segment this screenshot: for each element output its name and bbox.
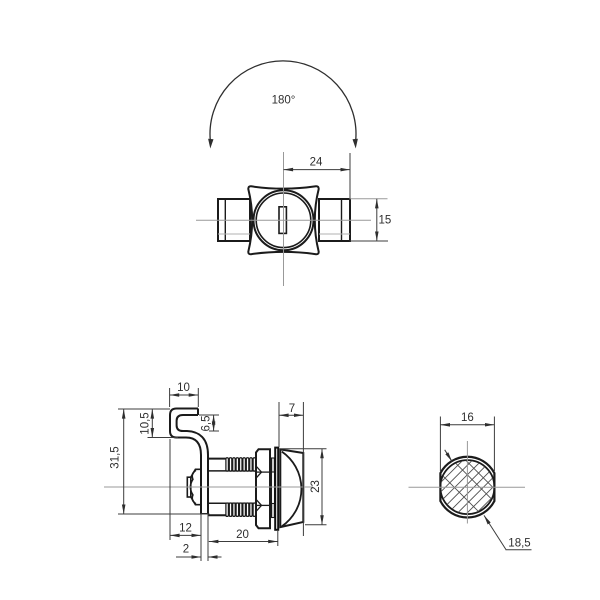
svg-text:2: 2 [183,544,189,556]
svg-text:6,5: 6,5 [201,416,213,432]
svg-text:10: 10 [177,382,190,394]
svg-text:10,5: 10,5 [140,412,152,434]
svg-text:31,5: 31,5 [109,446,121,468]
svg-text:20: 20 [236,529,249,541]
svg-text:16: 16 [461,412,474,424]
svg-text:15: 15 [379,215,392,227]
svg-text:24: 24 [310,157,323,169]
svg-text:23: 23 [310,480,322,493]
svg-text:180°: 180° [272,95,296,107]
svg-text:18,5: 18,5 [508,538,530,550]
svg-text:7: 7 [289,403,295,415]
svg-text:12: 12 [179,523,192,535]
